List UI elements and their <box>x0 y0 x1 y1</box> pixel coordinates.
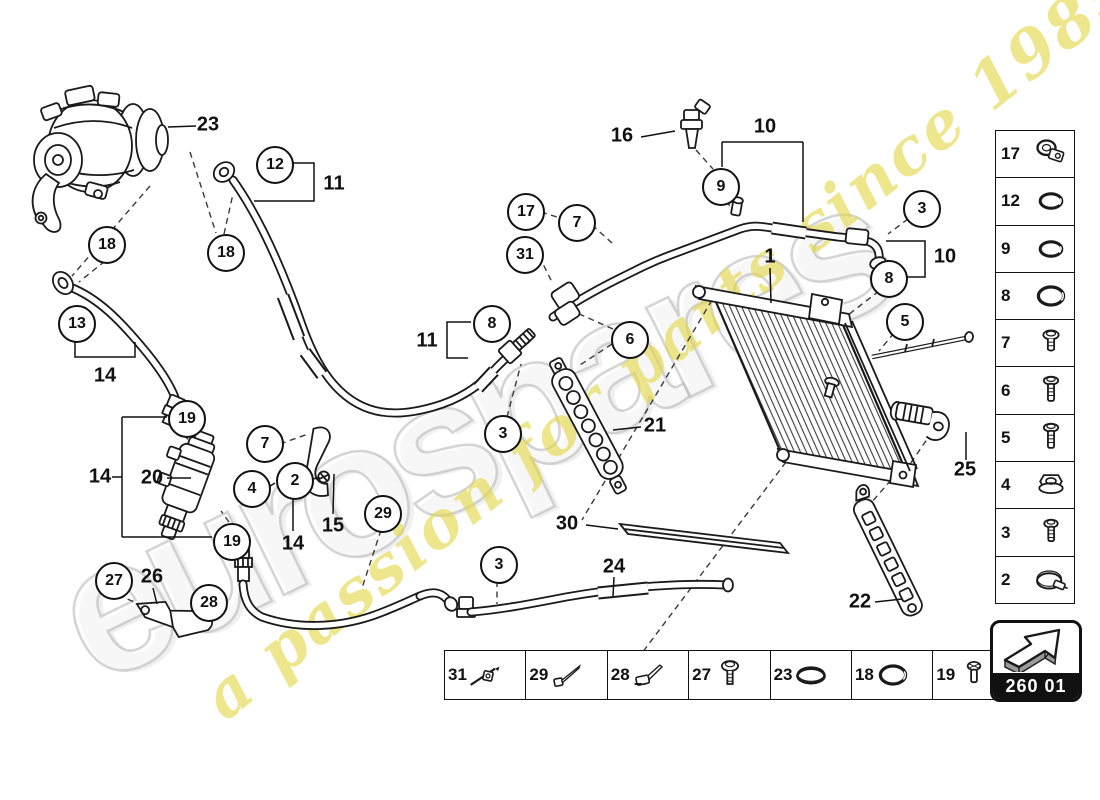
section-code: 260 01 <box>993 673 1079 699</box>
hose-14-lower <box>235 546 460 626</box>
pressure-sensor-16 <box>681 99 711 148</box>
bolt-small-icon <box>956 657 992 693</box>
legend-cell-9[interactable]: 9 <box>996 226 1074 273</box>
part-label-14: 14 <box>89 466 111 489</box>
part-callout-2[interactable]: 2 <box>276 462 314 500</box>
legend-cell-7[interactable]: 7 <box>996 320 1074 367</box>
cable-tie-anchor-icon <box>468 657 504 693</box>
part-label-23: 23 <box>197 114 219 137</box>
part-label-26: 26 <box>141 566 163 589</box>
part-label-25: 25 <box>954 459 976 482</box>
legend-cell-17[interactable]: 17 <box>996 131 1074 178</box>
part-callout-18[interactable]: 18 <box>88 226 126 264</box>
part-callout-19[interactable]: 19 <box>213 523 251 561</box>
part-label-22: 22 <box>849 591 871 614</box>
legend-cell-18[interactable]: 18 <box>852 651 933 699</box>
legend-cell-5[interactable]: 5 <box>996 415 1074 462</box>
legend-cell-27[interactable]: 27 <box>689 651 770 699</box>
legend-cell-31[interactable]: 31 <box>445 651 526 699</box>
part-label-10: 10 <box>754 116 776 139</box>
part-label-10: 10 <box>934 246 956 269</box>
parts-diagram-page: eurospares a passion for parts since 198… <box>0 0 1100 800</box>
o-ring-flat-icon <box>793 657 829 693</box>
legend-cell-8[interactable]: 8 <box>996 273 1074 320</box>
part-label-24: 24 <box>603 556 625 579</box>
legend-cell-6[interactable]: 6 <box>996 367 1074 414</box>
o-ring-icon <box>1033 231 1069 267</box>
part-label-20: 20 <box>141 467 163 490</box>
screw-washer-icon <box>712 657 748 693</box>
part-callout-3[interactable]: 3 <box>480 546 518 584</box>
screw-long-icon <box>1033 420 1069 456</box>
part-label-15: 15 <box>322 515 344 538</box>
part-callout-6[interactable]: 6 <box>611 321 649 359</box>
part-callout-27[interactable]: 27 <box>95 562 133 600</box>
part-label-21: 21 <box>644 415 666 438</box>
fasteners-legend-panel: 17 12 9 8 7 6 5 4 3 2 <box>995 130 1075 604</box>
thin-pipe <box>872 331 974 357</box>
part-callout-5[interactable]: 5 <box>886 303 924 341</box>
part-callout-8[interactable]: 8 <box>473 305 511 343</box>
o-ring-icon <box>1033 183 1069 219</box>
part-callout-8[interactable]: 8 <box>870 260 908 298</box>
part-callout-18[interactable]: 18 <box>207 234 245 272</box>
screw-short-icon <box>1033 325 1069 361</box>
section-badge[interactable]: 260 01 <box>990 620 1082 702</box>
flange-nut-icon <box>1033 467 1069 503</box>
part-callout-7[interactable]: 7 <box>246 425 284 463</box>
part-label-14: 14 <box>94 365 116 388</box>
legend-cell-29[interactable]: 29 <box>526 651 607 699</box>
part-callout-3[interactable]: 3 <box>484 415 522 453</box>
small-parts-legend-panel: 31 29 28 27 23 18 19 <box>444 650 1015 700</box>
part-callout-13[interactable]: 13 <box>58 305 96 343</box>
clip-tie-icon <box>631 657 667 693</box>
compressor-drawing <box>33 85 168 232</box>
legend-cell-3[interactable]: 3 <box>996 509 1074 556</box>
part-callout-9[interactable]: 9 <box>702 168 740 206</box>
condenser-1 <box>693 286 918 487</box>
screw-medium-icon <box>1033 515 1069 551</box>
seal-strip-30 <box>620 524 788 553</box>
legend-cell-23[interactable]: 23 <box>771 651 852 699</box>
part-label-16: 16 <box>611 125 633 148</box>
part-callout-7[interactable]: 7 <box>558 204 596 242</box>
part-callout-17[interactable]: 17 <box>507 193 545 231</box>
clamp-bracket-icon <box>1033 136 1069 172</box>
part-label-30: 30 <box>556 513 578 536</box>
legend-cell-2[interactable]: 2 <box>996 557 1074 603</box>
screw-long-icon <box>1033 373 1069 409</box>
part-label-11: 11 <box>323 173 344 196</box>
hose-14-upper <box>49 268 187 428</box>
bracket-21 <box>543 355 635 497</box>
part-label-1: 1 <box>764 246 775 269</box>
hose-24 <box>457 579 733 618</box>
part-callout-29[interactable]: 29 <box>364 495 402 533</box>
part-callout-28[interactable]: 28 <box>190 584 228 622</box>
part-callout-12[interactable]: 12 <box>256 146 294 184</box>
legend-cell-12[interactable]: 12 <box>996 178 1074 225</box>
part-label-14: 14 <box>282 533 304 556</box>
part-callout-19[interactable]: 19 <box>168 400 206 438</box>
part-callout-3[interactable]: 3 <box>903 190 941 228</box>
o-ring-large-icon <box>1033 278 1069 314</box>
hose-clamp-icon <box>1033 562 1069 598</box>
o-ring-large-icon <box>875 657 911 693</box>
part-callout-31[interactable]: 31 <box>506 236 544 274</box>
part-label-11: 11 <box>416 330 437 353</box>
cable-tie-icon <box>549 657 585 693</box>
legend-cell-28[interactable]: 28 <box>608 651 689 699</box>
legend-cell-4[interactable]: 4 <box>996 462 1074 509</box>
hose-11 <box>210 158 539 413</box>
arrow-icon <box>993 623 1079 673</box>
part-callout-4[interactable]: 4 <box>233 470 271 508</box>
